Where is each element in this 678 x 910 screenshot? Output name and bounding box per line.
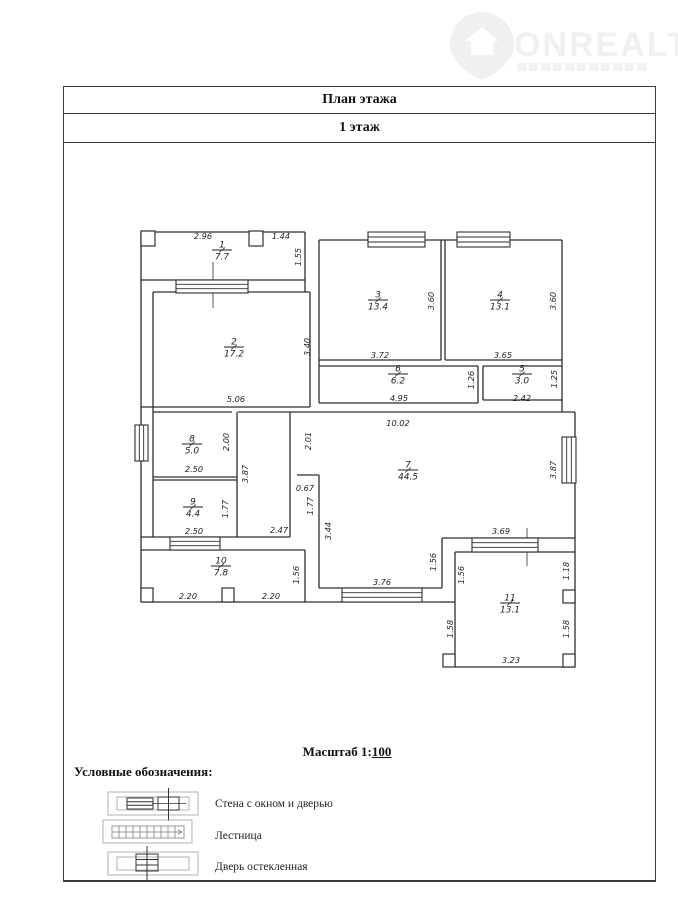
scale-note: Масштаб 1:100 (303, 744, 392, 760)
legend-item-label: Дверь остекленная (215, 861, 308, 873)
logo-subtext-decoration (517, 63, 646, 71)
scale-prefix: Масштаб 1: (303, 744, 372, 759)
page-title: План этажа (63, 86, 656, 114)
floor-subtitle-text: 1 этаж (339, 120, 380, 135)
legend-item-label: Стена с окном и дверью (215, 798, 333, 810)
page-title-text: План этажа (322, 92, 397, 107)
page-border-box (63, 86, 656, 882)
scale-value: 100 (372, 744, 392, 759)
legend-title: Условные обозначения: (74, 764, 213, 780)
logo-brand-text: ONREALT (514, 26, 678, 64)
floor-subtitle: 1 этаж (63, 113, 656, 143)
floor-plan-page: ONREALT 2.961.445.063.723.654.952.4210.0… (0, 0, 678, 910)
legend-item-label: Лестница (215, 830, 262, 842)
onrealt-logo: ONREALT (450, 12, 678, 80)
